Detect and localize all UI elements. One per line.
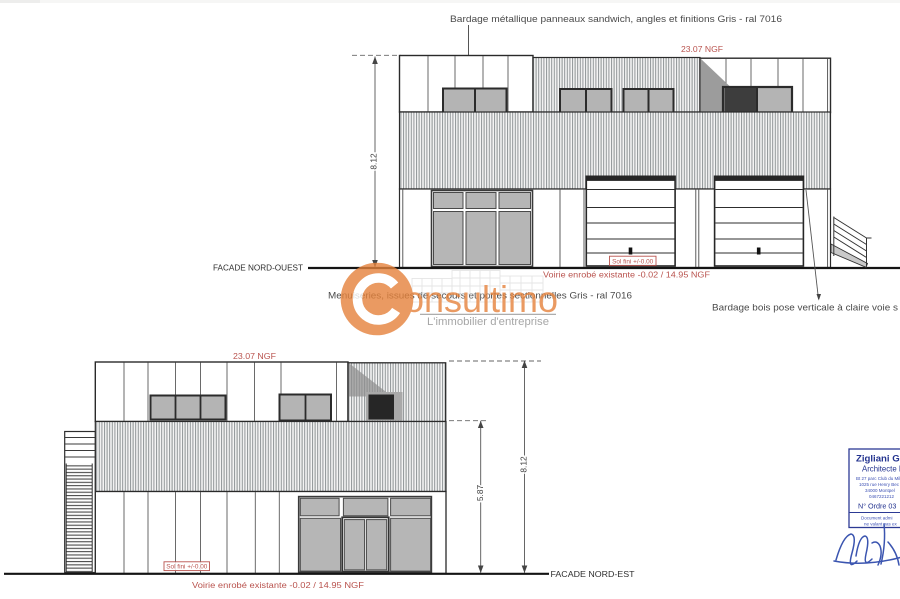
svg-text:Bardage bois pose verticale à: Bardage bois pose verticale à claire voi… xyxy=(712,303,898,313)
svg-text:FACADE NORD-OUEST: FACADE NORD-OUEST xyxy=(213,264,303,273)
svg-text:23.07 NGF: 23.07 NGF xyxy=(233,351,276,361)
svg-text:Zigliani Geo: Zigliani Geo xyxy=(856,454,900,465)
svg-text:Sol fini +/-0.00: Sol fini +/-0.00 xyxy=(166,564,207,571)
svg-text:Voirie enrobé existante -0.02: Voirie enrobé existante -0.02 / 14.95 NG… xyxy=(543,270,710,280)
svg-text:Bardage métallique panneaux sa: Bardage métallique panneaux sandwich, an… xyxy=(450,14,782,24)
svg-text:N° Ordre 03: N° Ordre 03 xyxy=(858,502,896,511)
svg-text:0467221212: 0467221212 xyxy=(869,494,895,499)
svg-text:23.07 NGF: 23.07 NGF xyxy=(681,44,723,54)
svg-text:Bt 27 parc Club du Mill: Bt 27 parc Club du Mill xyxy=(856,476,900,481)
svg-text:8.12: 8.12 xyxy=(369,153,379,170)
svg-text:1025 rue Henry Bec: 1025 rue Henry Bec xyxy=(859,482,900,487)
svg-text:FACADE NORD-EST: FACADE NORD-EST xyxy=(551,570,635,579)
svg-text:Voirie enrobé existante -0.02: Voirie enrobé existante -0.02 / 14.95 NG… xyxy=(192,580,364,590)
svg-text:Architecte D: Architecte D xyxy=(862,465,900,474)
svg-text:Document admi: Document admi xyxy=(861,516,893,521)
svg-text:L'immobilier d'entreprise: L'immobilier d'entreprise xyxy=(427,316,549,328)
svg-text:ne valant pas ex: ne valant pas ex xyxy=(864,521,898,526)
svg-text:34000 Montpel: 34000 Montpel xyxy=(865,488,895,493)
svg-text:5.87: 5.87 xyxy=(475,485,485,502)
svg-text:Sol fini +/-0.00: Sol fini +/-0.00 xyxy=(612,258,653,265)
svg-text:8.12: 8.12 xyxy=(519,456,529,473)
